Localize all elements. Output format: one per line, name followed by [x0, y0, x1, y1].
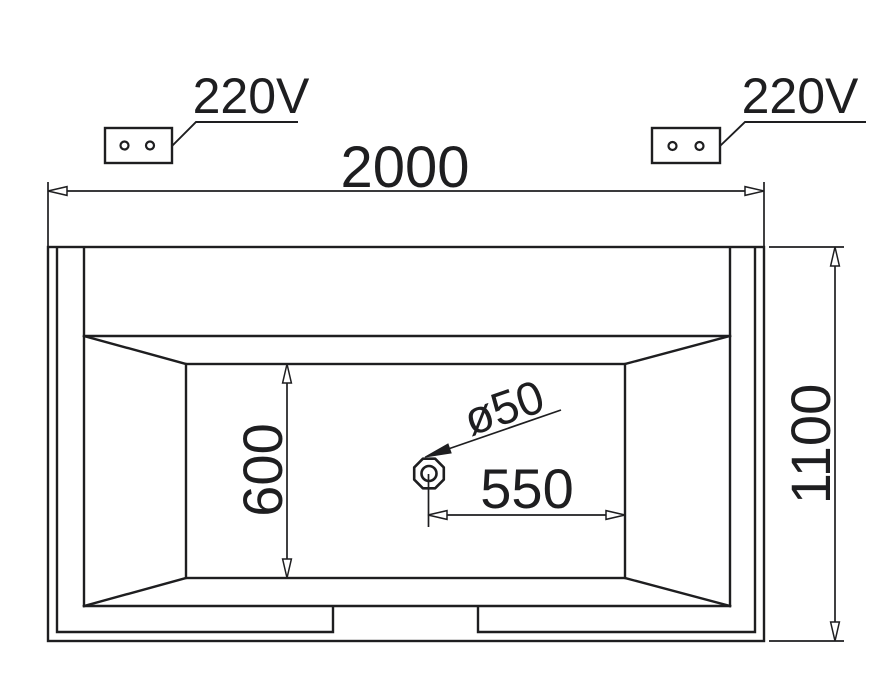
arrow-down-left-icon — [425, 444, 451, 457]
arrow-up-icon — [831, 247, 840, 266]
arrow-left-icon — [48, 187, 67, 196]
basin-corner-diagonal-bottom-right — [625, 578, 730, 606]
arrow-down-icon — [283, 559, 292, 578]
outlet-left-pin-icon — [146, 142, 154, 150]
drain-offset-value: 550 — [480, 457, 573, 520]
overall-depth-value: 1100 — [779, 384, 842, 504]
outlet-left-leader-line — [172, 122, 298, 146]
drain-diameter-value: ø50 — [457, 369, 551, 445]
basin-corner-diagonal-bottom-left — [84, 578, 186, 606]
outlet-right-pin-icon — [696, 142, 704, 150]
arrow-right-icon — [606, 511, 625, 520]
callout-drain-diameter: ø50 — [425, 369, 561, 457]
tub-outer-edge — [48, 247, 764, 641]
arrow-right-icon — [745, 187, 764, 196]
dimension-overall-depth: 1100 — [769, 247, 844, 641]
arrow-up-icon — [283, 364, 292, 383]
outlet-right-voltage-label: 220V — [742, 68, 859, 124]
dimension-overall-width: 2000 — [48, 135, 764, 246]
tub-inner-wall-right — [478, 248, 755, 632]
dimension-drain-offset: 550 — [428, 457, 625, 527]
outlet-left-box-icon — [105, 128, 172, 163]
basin-depth-value: 600 — [231, 423, 294, 516]
outlet-right-pin-icon — [669, 142, 677, 150]
tub-body — [48, 247, 764, 641]
overall-width-value: 2000 — [340, 135, 469, 200]
technical-drawing-canvas: 220V 220V 2000 1100 — [0, 0, 873, 677]
outlet-left-pin-icon — [121, 142, 129, 150]
arrow-down-icon — [831, 622, 840, 641]
dimension-basin-depth: 600 — [231, 364, 294, 578]
outlet-right-box-icon — [652, 128, 720, 163]
basin-corner-diagonal-top-left — [84, 336, 186, 364]
basin-corner-diagonal-top-right — [625, 336, 730, 364]
outlet-right: 220V — [652, 68, 866, 163]
outlet-left: 220V — [105, 68, 310, 163]
arrow-left-icon — [428, 511, 447, 520]
outlet-right-leader-line — [720, 122, 866, 146]
bathtub-plan-drawing: 220V 220V 2000 1100 — [0, 0, 873, 677]
outlet-left-voltage-label: 220V — [193, 68, 310, 124]
